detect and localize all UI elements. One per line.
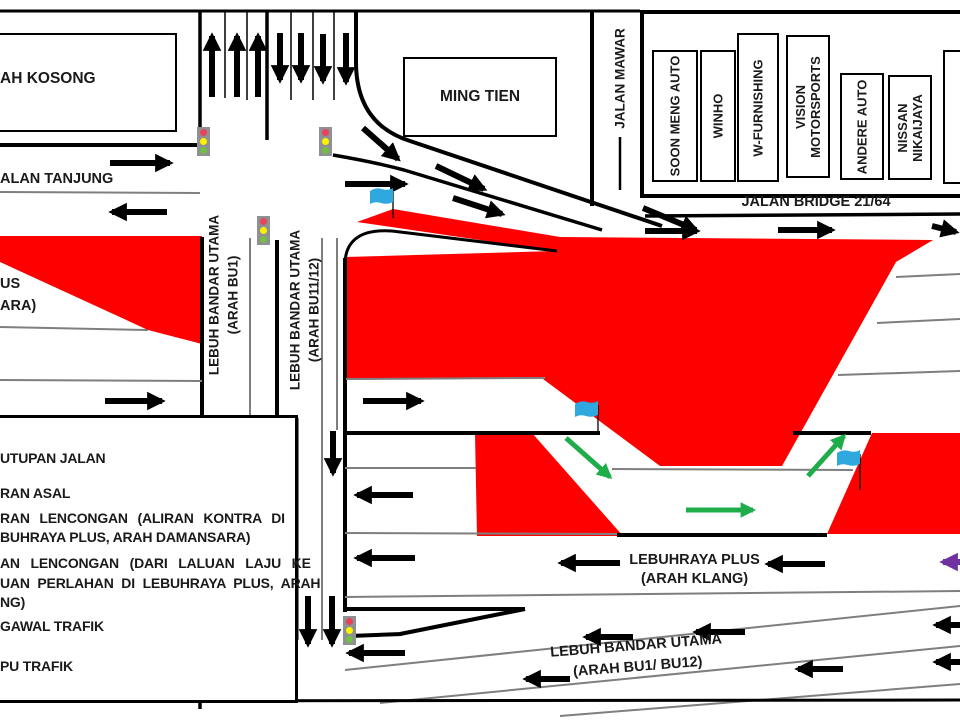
legend-item-pengawal-trafik: GAWAL TRAFIK — [0, 618, 104, 634]
legend-item-aliran-asal: RAN ASAL — [0, 485, 70, 501]
legend-item-lencongan-laju-1: AN LENCONGAN (DARI LALUAN LAJU KE — [0, 555, 311, 571]
traffic-light-lamp — [346, 618, 353, 625]
street-label-line: (ARAH KLANG) — [612, 570, 777, 589]
original-flow-arrow — [932, 226, 956, 232]
traffic-light-lamp — [260, 236, 267, 243]
jalan-tanjung-label: ALAN TANJUNG — [0, 171, 113, 187]
jalan-bridge-label: JALAN BRIDGE 21/64 — [710, 194, 922, 210]
street-label-line: LEBUH BANDAR UTAMA — [205, 205, 224, 386]
lane-lines-under — [0, 327, 148, 330]
lebuhraya-plus-damansara-label-2: ARA) — [0, 298, 36, 314]
lampu-trafik-icon — [343, 616, 356, 645]
closure-bottom-right — [827, 433, 960, 534]
traffic-light-lamp — [200, 147, 207, 154]
legend-item-penutupan-jalan: UTUPAN JALAN — [0, 450, 105, 466]
shop-partial — [943, 50, 960, 184]
traffic-light-lamp — [346, 636, 353, 643]
lebuhraya-plus-damansara-label-1: US — [0, 276, 20, 292]
closure-main — [345, 209, 933, 466]
shop-label: VISION MOTORSPORTS — [793, 39, 823, 174]
traffic-light-lamp — [322, 138, 329, 145]
street-label-line: LEBUHRAYA PLUS — [612, 551, 777, 570]
traffic-light-lamp — [200, 129, 207, 136]
lebuh-bandar-utama-bu1112-label: LEBUH BANDAR UTAMA (ARAH BU11/12) — [286, 205, 326, 416]
lebuhraya-plus-klang-label: LEBUHRAYA PLUS (ARAH KLANG) — [612, 551, 777, 589]
traffic-light-lamp — [260, 218, 267, 225]
street-label-line: (ARAH BU11/12) — [305, 205, 324, 416]
street-label-line: LEBUH BANDAR UTAMA — [286, 205, 305, 416]
shop-vision-motorsports: VISION MOTORSPORTS — [786, 35, 830, 178]
traffic-light-lamp — [260, 227, 267, 234]
jalan-mawar-label: JALAN MAWAR — [613, 24, 630, 134]
original-flow-arrow — [453, 198, 502, 214]
street-label-line: (ARAH BU1) — [224, 205, 243, 386]
lebuh-bandar-utama-bu1-label: LEBUH BANDAR UTAMA (ARAH BU1) — [205, 205, 245, 386]
shop-winho: WINHO — [700, 50, 736, 182]
shop-label: NISSAN NIKAIJAYA — [895, 79, 925, 176]
shop-label: W-FURNISHING — [751, 37, 766, 178]
legend-item-lencongan-kontra-1: RAN LENCONGAN (ALIRAN KONTRA DI — [0, 510, 285, 526]
traffic-light-lamp — [200, 138, 207, 145]
shop-label: WINHO — [711, 54, 726, 178]
ming-tien-label: MING TIEN — [440, 88, 520, 106]
shop-label: ANDERE AUTO — [855, 77, 870, 176]
lampu-trafik-icon — [257, 216, 270, 245]
diversion-contra-arrow — [566, 438, 610, 477]
shop-andere-auto: ANDERE AUTO — [840, 73, 884, 180]
tanah-kosong-label: AH KOSONG — [0, 70, 96, 88]
lampu-trafik-icon — [319, 127, 332, 156]
traffic-diversion-diagram: AH KOSONG MING TIEN SOON MENG AUTO WINHO… — [0, 0, 960, 720]
shop-nissan-nikaijaya: NISSAN NIKAIJAYA — [888, 75, 932, 180]
traffic-light-lamp — [346, 627, 353, 634]
legend-item-lencongan-kontra-2: BUHRAYA PLUS, ARAH DAMANSARA) — [0, 529, 250, 545]
traffic-light-lamp — [322, 129, 329, 136]
legend-item-lencongan-laju-2: UAN PERLAHAN DI LEBUHRAYA PLUS, ARAH — [0, 575, 320, 591]
original-flow-arrow — [643, 208, 696, 230]
ming-tien-building: MING TIEN — [403, 57, 557, 137]
legend-item-lampu-trafik: PU TRAFIK — [0, 658, 73, 674]
lampu-trafik-icon — [197, 127, 210, 156]
closure-klang-block — [475, 433, 623, 536]
shop-w-furnishing: W-FURNISHING — [737, 33, 779, 182]
legend-item-lencongan-laju-3: NG) — [0, 594, 25, 610]
shop-soon-meng-auto: SOON MENG AUTO — [652, 50, 698, 182]
shop-label: SOON MENG AUTO — [668, 54, 683, 178]
traffic-light-lamp — [322, 147, 329, 154]
